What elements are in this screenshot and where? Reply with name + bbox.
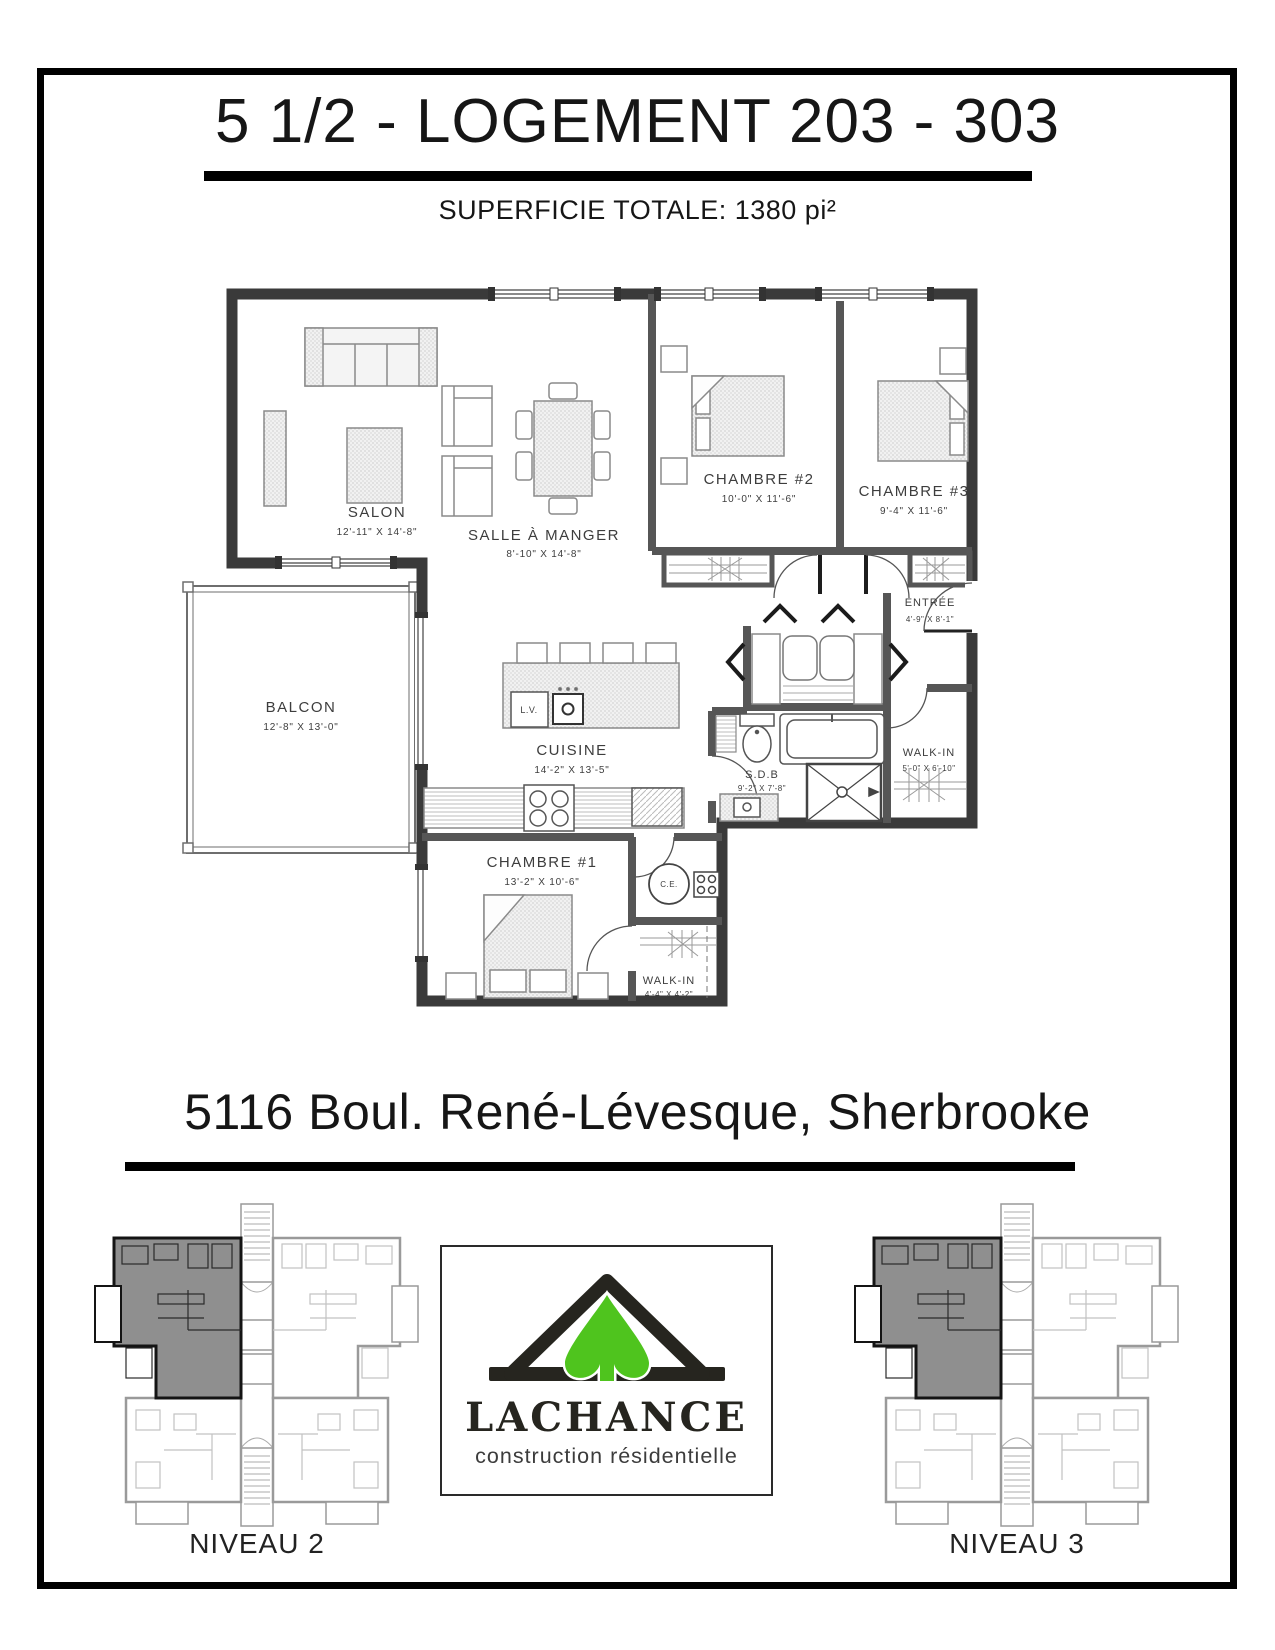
walkin-bottom-rod — [640, 926, 717, 998]
bath-vanity — [720, 794, 778, 821]
svg-text:CUISINE: CUISINE — [536, 742, 607, 759]
label-balcon: BALCON 12'-8" X 13'-0" — [263, 699, 338, 733]
svg-text:ENTRÉE: ENTRÉE — [905, 596, 956, 609]
chambre3-furniture — [878, 348, 968, 461]
label-chambre-1: CHAMBRE #1 13'-2" X 10'-6" — [487, 854, 598, 888]
label-chambre-3: CHAMBRE #3 9'-4" X 11'-6" — [859, 483, 970, 517]
balcony-door — [415, 612, 428, 770]
logo-tagline: construction résidentielle — [442, 1444, 771, 1469]
svg-text:SALON: SALON — [348, 504, 406, 521]
label-chauffe-eau: C.E. — [660, 880, 678, 889]
label-salon: SALON 12'-11" X 14'-8" — [337, 504, 418, 538]
company-logo-box: LACHANCE construction résidentielle — [440, 1245, 773, 1496]
svg-text:4'-4" X 4'-2": 4'-4" X 4'-2" — [645, 990, 693, 999]
svg-text:WALK-IN: WALK-IN — [643, 975, 695, 987]
main-floorplan: SALON 12'-11" X 14'-8" SALLE À MANGER 8'… — [172, 286, 987, 1026]
bedroom-closets — [664, 553, 970, 594]
svg-text:BALCON: BALCON — [266, 699, 337, 716]
svg-text:9'-2" X 7'-8": 9'-2" X 7'-8" — [738, 784, 786, 793]
title-divider — [204, 171, 1032, 181]
windows — [275, 287, 978, 962]
balcony-railing — [183, 582, 419, 853]
svg-text:10'-0" X 11'-6": 10'-0" X 11'-6" — [722, 494, 796, 505]
svg-text:14'-2" X 13'-5": 14'-2" X 13'-5" — [534, 765, 609, 776]
svg-text:WALK-IN: WALK-IN — [903, 747, 955, 759]
label-lave-vaisselle: L.V. — [520, 705, 537, 715]
svg-text:CHAMBRE #2: CHAMBRE #2 — [704, 471, 815, 488]
label-cuisine: CUISINE 14'-2" X 13'-5" — [534, 742, 609, 776]
logo-brand-name: LACHANCE — [442, 1398, 771, 1438]
svg-text:9'-4" X 11'-6": 9'-4" X 11'-6" — [880, 506, 948, 517]
walkin-right-rod — [894, 768, 967, 802]
label-sdb: S.D.B 9'-2" X 7'-8" — [738, 769, 786, 793]
svg-text:13'-2" X 10'-6": 13'-2" X 10'-6" — [504, 877, 579, 888]
shower-icon — [807, 764, 881, 821]
svg-text:S.D.B: S.D.B — [745, 769, 779, 781]
svg-text:CHAMBRE #1: CHAMBRE #1 — [487, 854, 598, 871]
page-subtitle: SUPERFICIE TOTALE: 1380 pi² — [0, 195, 1275, 226]
label-walkin-entree: WALK-IN 5'-0" X 6'-10" — [902, 747, 955, 773]
svg-text:5'-0" X 6'-10": 5'-0" X 6'-10" — [902, 764, 955, 773]
mini-plan-niveau-2 — [92, 1190, 422, 1540]
address-divider — [125, 1162, 1075, 1171]
svg-text:4'-9" X 8'-1": 4'-9" X 8'-1" — [906, 615, 954, 624]
svg-text:12'-11" X 14'-8": 12'-11" X 14'-8" — [337, 527, 418, 538]
svg-text:SALLE À MANGER: SALLE À MANGER — [468, 527, 620, 544]
flyer-page: { "page": { "title": "5 1/2 - LOGEMENT 2… — [0, 0, 1275, 1650]
niveau-3-label: NIVEAU 3 — [852, 1528, 1182, 1560]
label-walkin-chambre1: WALK-IN 4'-4" X 4'-2" — [643, 975, 695, 999]
kitchen-island — [503, 643, 679, 728]
stove-icon — [524, 785, 574, 831]
toilet-icon — [740, 714, 774, 762]
kitchen-sink — [553, 688, 583, 724]
mini-plan-niveau-3 — [852, 1190, 1182, 1540]
label-chambre-2: CHAMBRE #2 10'-0" X 11'-6" — [704, 471, 815, 505]
label-salle-a-manger: SALLE À MANGER 8'-10" X 14'-8" — [468, 527, 620, 560]
address-line: 5116 Boul. René-Lévesque, Sherbrooke — [0, 1083, 1275, 1141]
kitchen-counter — [424, 785, 684, 831]
dining-furniture — [516, 383, 610, 514]
svg-text:12'-8" X 13'-0": 12'-8" X 13'-0" — [263, 722, 338, 733]
entry-closet — [728, 606, 906, 704]
bathtub-icon — [780, 714, 884, 764]
svg-text:CHAMBRE #3: CHAMBRE #3 — [859, 483, 970, 500]
page-title: 5 1/2 - LOGEMENT 203 - 303 — [0, 86, 1275, 157]
mini-stove-icon — [694, 872, 719, 897]
lachance-tree-icon — [477, 1257, 737, 1391]
chambre1-furniture — [446, 895, 608, 999]
chambre2-furniture — [661, 346, 784, 484]
salon-furniture — [264, 328, 492, 516]
niveau-2-label: NIVEAU 2 — [92, 1528, 422, 1560]
label-entree: ENTRÉE 4'-9" X 8'-1" — [905, 596, 956, 624]
svg-text:8'-10" X 14'-8": 8'-10" X 14'-8" — [506, 549, 581, 560]
